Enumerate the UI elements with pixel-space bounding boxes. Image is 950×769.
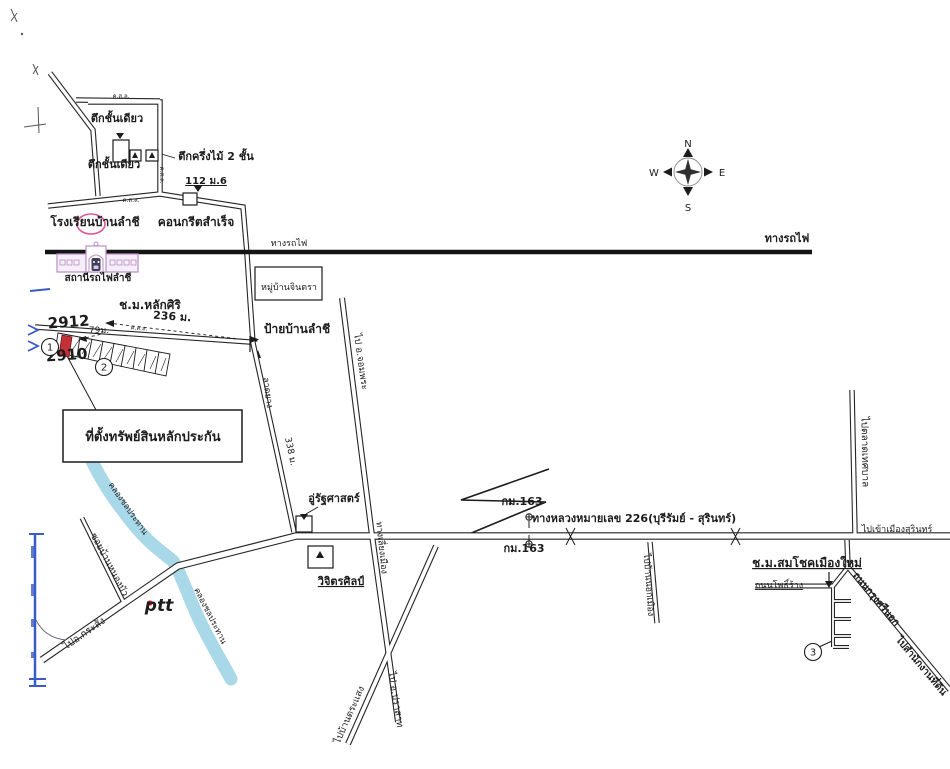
distance-236m-label: 236 ม. (153, 309, 192, 325)
km163-south-label: กม.163 (503, 542, 544, 555)
compass-s-label: S (685, 203, 691, 214)
address-112-m6-label: 112 ม.6 (185, 176, 227, 187)
plot-marker-1: 1 (42, 339, 59, 356)
bldg-single-storey-1-label: ตึกชั้นเดียว (91, 110, 143, 125)
road-type-ksl-3-label: ค.ส.ล. (130, 324, 148, 332)
station-lamchi-label: สถานีรถไฟลำชี (65, 271, 132, 284)
to-talat-thesaban-label: ไปตลาดเทศบาล (858, 416, 871, 488)
to-krasang-label: ไปอ.กระสัง (60, 615, 107, 653)
to-land-office-label: ไปสำนักงานที่ดิน (893, 632, 950, 698)
compass-w-label: W (649, 168, 659, 179)
map-canvas: ตึกชั้นเดียวตึกชั้นเดียวตึกครึ่งไม้ 2 ชั… (0, 0, 950, 769)
bldg-single-storey-2-label: ตึกชั้นเดียว (88, 156, 140, 171)
railway-label-small-label: ทางรถไฟ (271, 238, 308, 249)
compass-n-label: N (684, 139, 691, 150)
svg-text:1: 1 (47, 343, 53, 354)
parcel-2912-label: 2912 (47, 312, 90, 333)
ptt-logo-text-label: ptt (144, 596, 174, 616)
building-112-m6 (183, 193, 197, 205)
thanon-krungsi-nok-label: ถนนกรุงศรีนอก (850, 570, 902, 629)
garage-rattasat-label: อู่รัฐศาสตร์ (308, 492, 360, 506)
distance-79m-label: 79ม. (89, 326, 109, 336)
train-glyph (92, 258, 101, 271)
distance-338m-label: 338 ม. (282, 436, 298, 466)
svg-text:2: 2 (101, 363, 107, 374)
road-type-ksl-4-label: ค.ส.ล. (158, 166, 165, 183)
road-type-ksl-1-label: ค.ส.ล. (112, 93, 129, 100)
road-type-ksl-2-label: ค.ส.ล. (122, 197, 139, 204)
railway-label-main-label: ทางรถไฟ (765, 231, 810, 245)
canal-label-1-label: คลองชลประทาน (106, 481, 150, 538)
scanned-map-page: ตึกชั้นเดียวตึกชั้นเดียวตึกครึ่งไม้ 2 ชั… (0, 0, 950, 769)
bldg-halfwood-2storey-label: ตึกครึ่งไม้ 2 ชั้น (178, 148, 254, 163)
svg-text:3: 3 (810, 648, 816, 659)
soi-ban-nongbua-label: ซอยบ้านหนองบัว (88, 531, 131, 598)
road-latyang-label: ลาดยาง (260, 377, 274, 409)
shop-wijitsin-label: วิจิตรศิลป์ (317, 575, 364, 588)
plot-marker-2: 2 (96, 359, 113, 376)
to-prasat-label: ไป อ.ปราสาท (385, 670, 406, 729)
chm-somchok-label: ช.ม.สมโชคเมืองใหม่ (752, 555, 862, 570)
plot-marker-3: 3 (805, 644, 822, 661)
compass-e-label: E (719, 168, 725, 179)
sign-banlamchi-label: ป้ายบ้านลำชี (264, 322, 330, 336)
highway-226-label: ทางหลวงหมายเลข 226(บุรีรัมย์ - สุรินทร์) (532, 512, 736, 526)
pen-scribbles (11, 9, 46, 133)
road-concrete-label: คอนกรีตสำเร็จ (158, 214, 235, 229)
village-jintra-label: หมู่บ้านจินตรา (261, 282, 317, 293)
to-surin-city-label: ไปเข้าเมืองสุรินทร์ (861, 523, 933, 535)
thanon-phorang-label: ถนนโพธิ์ร้าง (755, 578, 803, 591)
compass-rose (663, 148, 713, 196)
school-banlamchi-label: โรงเรียนบ้านลำชี (49, 214, 139, 229)
km163-north-label: กม.163 (501, 495, 542, 508)
